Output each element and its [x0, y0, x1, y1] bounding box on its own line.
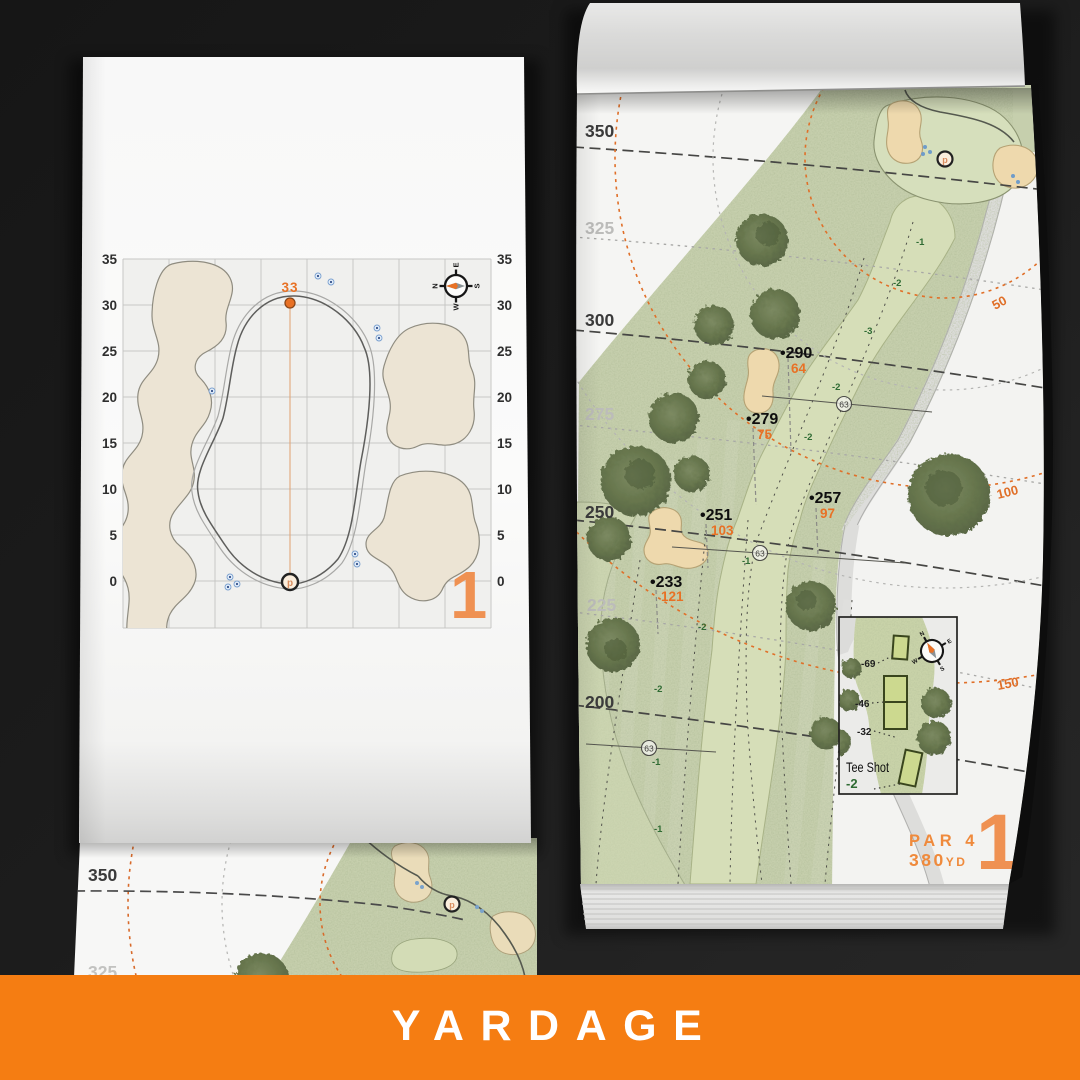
svg-text:-1: -1	[916, 237, 925, 248]
svg-text:•290: •290	[780, 345, 812, 362]
svg-text:5: 5	[109, 528, 117, 543]
svg-text:S: S	[472, 283, 481, 288]
svg-text:0: 0	[497, 574, 505, 589]
svg-text:-46: -46	[855, 699, 870, 710]
svg-text:E: E	[451, 262, 460, 267]
svg-text:121: 121	[661, 589, 684, 604]
svg-text:64: 64	[791, 361, 807, 376]
svg-text:1: 1	[450, 558, 487, 633]
svg-text:-69: -69	[861, 659, 876, 670]
svg-text:N: N	[430, 283, 439, 288]
svg-text:103: 103	[711, 523, 734, 538]
svg-text:-32: -32	[857, 727, 872, 738]
svg-text:p: p	[287, 578, 293, 589]
svg-text:20: 20	[497, 390, 512, 405]
svg-text:10: 10	[497, 482, 512, 497]
svg-text:-3: -3	[864, 326, 872, 337]
svg-text:•257: •257	[809, 490, 841, 507]
svg-text:-1: -1	[742, 556, 751, 567]
svg-text:35: 35	[497, 252, 513, 267]
svg-text:PAR 4: PAR 4	[909, 832, 979, 850]
svg-text:W: W	[451, 303, 460, 311]
svg-text:25: 25	[497, 344, 513, 359]
svg-text:63: 63	[644, 744, 654, 754]
svg-text:-1: -1	[652, 757, 661, 768]
svg-text:-2: -2	[846, 776, 858, 791]
svg-text:•279: •279	[746, 411, 778, 428]
svg-text:YARDAGE: YARDAGE	[392, 1002, 719, 1050]
svg-text:97: 97	[820, 506, 835, 521]
svg-text:-2: -2	[832, 382, 840, 393]
svg-text:-2: -2	[804, 432, 812, 443]
svg-text:-2: -2	[893, 278, 901, 289]
svg-text:•251: •251	[700, 507, 732, 524]
svg-text:33: 33	[281, 280, 298, 295]
svg-text:-1: -1	[654, 824, 663, 835]
svg-text:p: p	[449, 900, 455, 910]
svg-text:-2: -2	[654, 684, 662, 695]
svg-text:5: 5	[497, 528, 505, 543]
svg-text:Tee Shot: Tee Shot	[846, 759, 889, 775]
svg-text:15: 15	[497, 436, 513, 451]
svg-text:63: 63	[755, 549, 765, 559]
svg-text:-2: -2	[698, 622, 706, 633]
svg-text:350: 350	[88, 865, 117, 885]
svg-text:63: 63	[839, 400, 849, 410]
svg-text:75: 75	[757, 427, 773, 442]
svg-text:p: p	[942, 155, 948, 165]
svg-text:30: 30	[497, 298, 512, 313]
svg-text:0: 0	[109, 574, 117, 589]
